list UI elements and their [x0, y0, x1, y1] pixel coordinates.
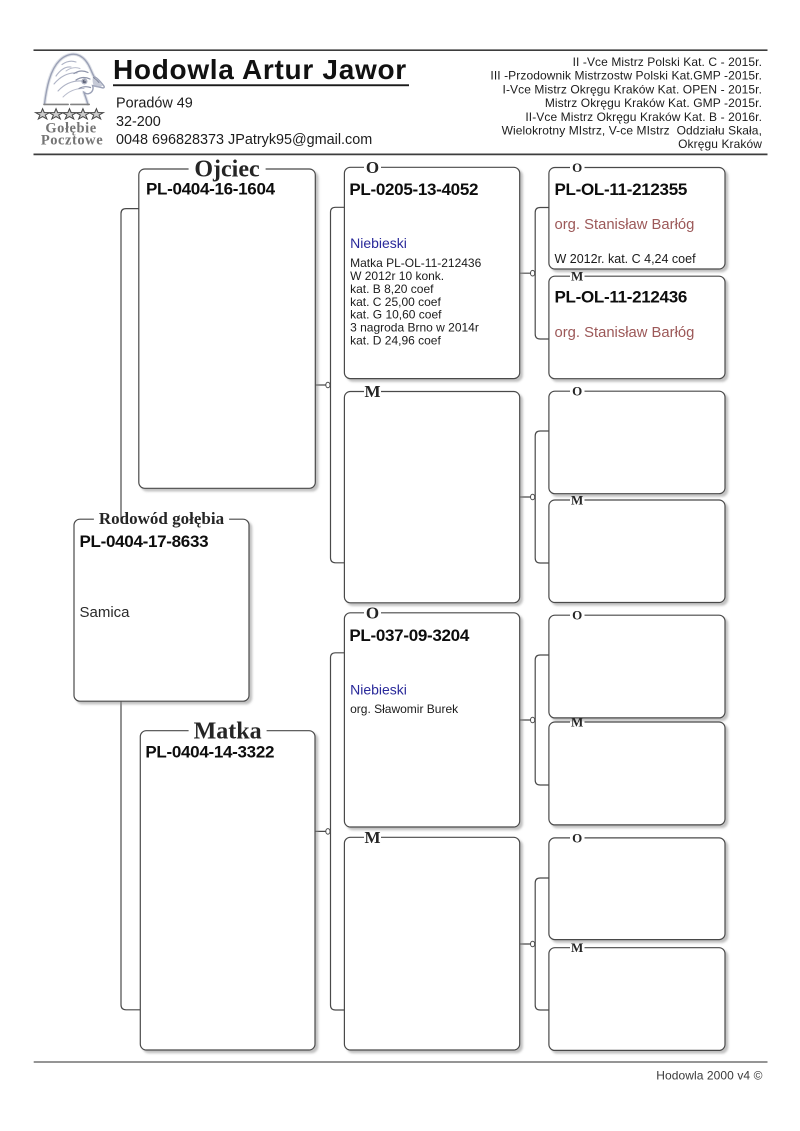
svg-text:Mistrz Okręgu Kraków Kat. GMP: Mistrz Okręgu Kraków Kat. GMP -2015r.	[545, 96, 762, 110]
svg-text:III -Przodownik Mistrzostw Pol: III -Przodownik Mistrzostw Polski Kat.GM…	[490, 69, 762, 83]
svg-text:O: O	[572, 608, 582, 623]
svg-text:PL-0404-14-3322: PL-0404-14-3322	[145, 743, 274, 762]
svg-text:PL-037-09-3204: PL-037-09-3204	[349, 626, 469, 645]
svg-text:W 2012r 10 konk.: W 2012r 10 konk.	[350, 269, 444, 283]
svg-text:O: O	[572, 160, 582, 175]
svg-text:Hodowla Artur Jawor: Hodowla Artur Jawor	[113, 54, 407, 85]
svg-text:Samica: Samica	[80, 604, 131, 621]
svg-text:O: O	[366, 604, 379, 623]
svg-text:M: M	[571, 940, 583, 955]
svg-text:3 nagroda Brno w 2014r: 3 nagroda Brno w 2014r	[350, 321, 479, 335]
svg-text:Rodowód gołębia: Rodowód gołębia	[99, 509, 225, 528]
svg-text:II-Vce Mistrz Okręgu Kraków Ka: II-Vce Mistrz Okręgu Kraków Kat. B - 201…	[525, 110, 762, 124]
svg-text:Pocztowe: Pocztowe	[41, 132, 103, 148]
svg-text:0048 696828373 JPatryk95@gmail: 0048 696828373 JPatryk95@gmail.com	[116, 132, 372, 148]
svg-text:M: M	[571, 714, 583, 729]
svg-text:M: M	[364, 828, 380, 847]
svg-text:O: O	[572, 830, 582, 845]
svg-text:org. Stanisław Barłóg: org. Stanisław Barłóg	[555, 325, 695, 341]
svg-text:Poradów 49: Poradów 49	[116, 96, 193, 112]
svg-text:Niebieski: Niebieski	[350, 682, 407, 698]
svg-text:Matka PL-OL-11-212436: Matka PL-OL-11-212436	[350, 256, 482, 270]
svg-text:M: M	[364, 382, 380, 401]
svg-text:I-Vce Mistrz Okręgu Kraków Kat: I-Vce Mistrz Okręgu Kraków Kat. OPEN - 2…	[503, 82, 762, 96]
svg-text:PL-0404-17-8633: PL-0404-17-8633	[80, 532, 209, 551]
svg-text:PL-0205-13-4052: PL-0205-13-4052	[349, 180, 478, 199]
svg-text:M: M	[571, 269, 583, 284]
svg-text:II -Vce Mistrz Polski Kat. C -: II -Vce Mistrz Polski Kat. C - 2015r.	[573, 55, 762, 69]
svg-text:PL-OL-11-212355: PL-OL-11-212355	[555, 180, 688, 199]
svg-text:kat. C 25,00 coef: kat. C 25,00 coef	[350, 295, 441, 309]
svg-text:32-200: 32-200	[116, 114, 161, 130]
svg-text:Wielokrotny MIstrz, V-ce MIstr: Wielokrotny MIstrz, V-ce MIstrz Oddziału…	[502, 124, 762, 138]
svg-text:Hodowla 2000 v4 ©: Hodowla 2000 v4 ©	[656, 1069, 762, 1083]
svg-text:org. Stanisław Barłóg: org. Stanisław Barłóg	[555, 217, 695, 233]
svg-text:org. Sławomir Burek: org. Sławomir Burek	[350, 702, 459, 716]
svg-text:W 2012r. kat. C 4,24 coef: W 2012r. kat. C 4,24 coef	[555, 252, 697, 266]
svg-text:O: O	[572, 384, 582, 399]
svg-text:kat. G 10,60 coef: kat. G 10,60 coef	[350, 308, 442, 322]
svg-text:O: O	[366, 158, 379, 177]
svg-text:Matka: Matka	[194, 718, 262, 744]
svg-text:Niebieski: Niebieski	[350, 235, 407, 251]
svg-text:PL-OL-11-212436: PL-OL-11-212436	[555, 288, 688, 307]
svg-text:kat. B 8,20 coef: kat. B 8,20 coef	[350, 282, 434, 296]
svg-text:kat. D 24,96 coef: kat. D 24,96 coef	[350, 334, 441, 348]
svg-text:PL-0404-16-1604: PL-0404-16-1604	[146, 180, 276, 199]
svg-text:M: M	[571, 492, 583, 507]
svg-text:Okręgu Kraków: Okręgu Kraków	[678, 137, 762, 151]
